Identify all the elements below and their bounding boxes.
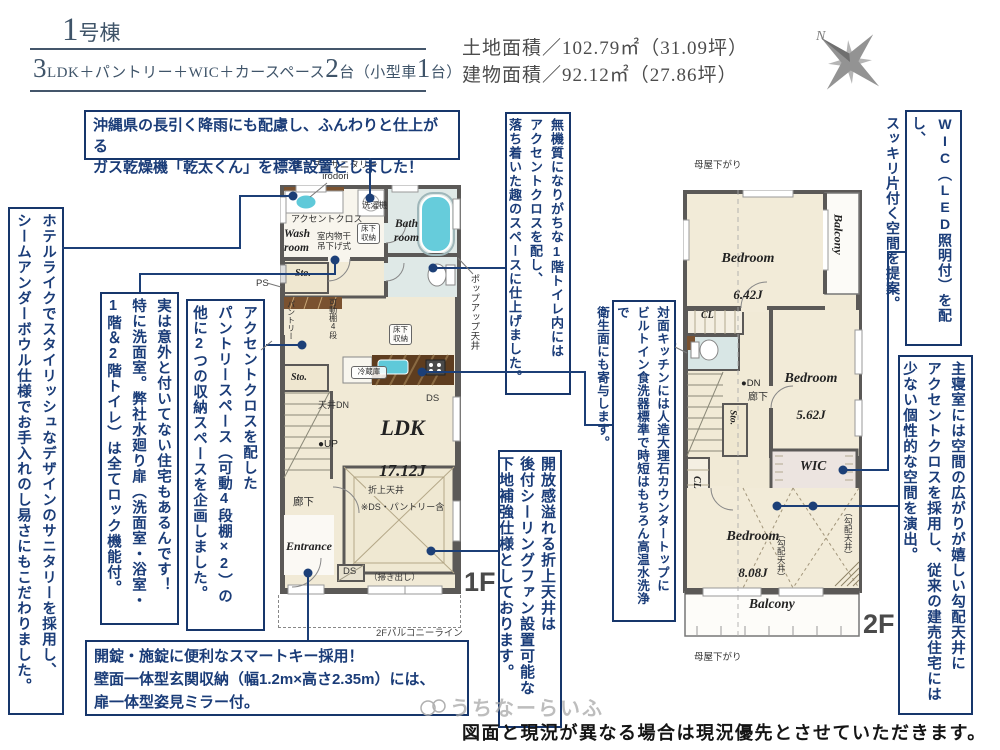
spec-num-cars: 2 <box>325 53 339 83</box>
closet-label-1: CL <box>701 310 714 322</box>
bedroom1-size-label: 6.42J <box>710 287 786 303</box>
note-kitchen: 対面キッチンには人造大理石カウンタートップに ビルトイン食洗器標準で時短はもちろ… <box>612 300 676 622</box>
spec-num-ldk: 3 <box>33 53 47 83</box>
watermark-text: うちなーらいふ <box>450 692 604 721</box>
bath-room-label: Bath room <box>394 218 419 246</box>
dn-label: ●DN <box>741 378 760 389</box>
spec-num-small-car: 1 <box>417 53 431 83</box>
ps-label: PS <box>256 278 269 289</box>
ldk-label: LDK <box>345 415 460 441</box>
note-door-locks: 実は意外と付いてない住宅もあるんです！ 特に洗面室。弊社水廻り扉（洗面室・浴室・… <box>100 292 179 625</box>
washer-label: 洗濯機 <box>362 200 388 210</box>
compass-icon: N <box>812 22 890 102</box>
balcony-bottom-label: Balcony <box>749 596 795 612</box>
hallway-label-2f: 廊下 <box>748 392 768 404</box>
note-gas-dryer: 沖縄県の長引く降雨にも配慮し、ふんわりと仕上がる ガス乾燥機「乾太くん」を標準設… <box>84 110 460 160</box>
accent-cloth-label-wash: アクセントクロス <box>291 214 363 225</box>
balcony-outline-1f <box>278 595 461 628</box>
building-suffix: 号棟 <box>79 21 121 45</box>
shelf-label: 可動棚4段 <box>328 298 338 348</box>
wic-label: WIC <box>800 458 826 474</box>
note-toilet-accent: 無機質になりがちな1階トイレ内には アクセントクロスを配し、 落ち着いた趣のスペ… <box>505 112 571 395</box>
moya-top-label: 母屋下がり <box>694 160 742 171</box>
sloped-ceiling-label-2: （勾配天井） <box>843 508 853 570</box>
ldk-note-label: ※DS・パントリー含 <box>345 502 460 513</box>
compass-north-label: N <box>815 29 826 44</box>
note-sanitary: ホテルライクでスタイリッシュなデザインのサニタリーを採用し、 シームアンダーボウ… <box>8 207 64 715</box>
bedroom2-label: Bedroom <box>780 371 842 388</box>
building-area: 建物面積／92.12㎡（27.86坪） <box>462 60 738 87</box>
pantry-label: パントリー <box>286 300 296 346</box>
floor-label-1f: 1F <box>464 566 496 598</box>
floor-label-2f: 2F <box>863 608 895 640</box>
note-pantry: アクセントクロスを配した パントリースペース（可動4段棚×2）の 他に2つの収納… <box>186 299 265 631</box>
wash-room-label: Wash room <box>284 228 310 256</box>
watermark-mascot-icon <box>420 696 446 718</box>
spec-text-2: 台（小型車 <box>339 65 417 81</box>
hakidashi-label: （掃き出し） <box>369 572 420 582</box>
watermark: うちなーらいふ <box>420 692 604 721</box>
storage-label-2: Sto. <box>291 372 307 384</box>
closet-label-2: CL <box>690 476 702 506</box>
flyer-canvas: 1号棟 3LDK＋パントリー＋WIC＋カースペース2台（小型車1台） 土地面積／… <box>0 0 1000 750</box>
title-divider-bottom <box>30 90 426 92</box>
page-title: 1号棟 <box>62 12 121 49</box>
underfloor-storage-label-2: 床下収納 <box>389 324 412 345</box>
note-smart-key: 開錠・施錠に便利なスマートキー採用！ 壁面一体型玄関収納（幅1.2m×高さ2.3… <box>85 640 469 716</box>
land-area: 土地面積／102.79㎡（31.09坪） <box>462 33 748 60</box>
spec-text-1: LDK＋パントリー＋WIC＋カースペース <box>47 65 325 81</box>
fridge-label: 冷蔵庫 <box>351 366 387 379</box>
ldk-size-label: 17.12J <box>345 461 460 481</box>
ldk-label-block: LDK 17.12J ※DS・パントリー含 <box>345 396 460 532</box>
title-divider-top <box>30 48 426 50</box>
balcony-line-label: 2Fバルコニーライン <box>374 628 465 639</box>
up-label: ●UP <box>318 439 338 451</box>
spec-text-3: 台） <box>431 65 462 81</box>
note-coffered-ceiling: 開放感溢れる折上天井は 後付シーリングファン設置可能な 下地補強仕様としておりま… <box>498 450 562 728</box>
bedroom1-label: Bedroom <box>710 251 786 268</box>
storage-label-1: Sto. <box>295 268 311 280</box>
ds-label-2: DS <box>343 566 356 577</box>
indoor-drying-label: 室内物干 吊下げ式 <box>317 231 351 251</box>
underfloor-storage-label-1: 床下収納 <box>357 223 380 244</box>
popup-ceiling-label: ポップアップ天井 <box>468 274 479 360</box>
note-master-bedroom: 主寝室には空間の広がりが嬉しい勾配天井に アクセントクロスを採用し、従来の建売住… <box>898 355 973 715</box>
coffered-ceiling-label: 折上天井 <box>366 485 406 496</box>
entrance-label: Entrance <box>286 539 332 553</box>
bedroom2-label-block: Bedroom 5.62J <box>780 352 842 442</box>
building-number: 1 <box>62 12 79 48</box>
bedroom1-label-block: Bedroom 6.42J <box>710 232 786 322</box>
note-wic: WIC（LED照明付）を配し、 スッキリ片付く空間を提案。 <box>905 110 962 346</box>
bedroom2-size-label: 5.62J <box>780 407 842 423</box>
moya-bottom-label: 母屋下がり <box>694 652 742 663</box>
storage-label-2f: Sto. <box>726 410 737 450</box>
hallway-label-1f: 廊下 <box>293 496 314 509</box>
sloped-ceiling-label-1: （勾配天井） <box>776 530 786 592</box>
plan-spec: 3LDK＋パントリー＋WIC＋カースペース2台（小型車1台） <box>33 53 462 84</box>
balcony-top-label: Balcony <box>831 214 845 286</box>
disclaimer: 図面と現況が異なる場合は現況優先とさせていただきます。 <box>462 719 987 745</box>
